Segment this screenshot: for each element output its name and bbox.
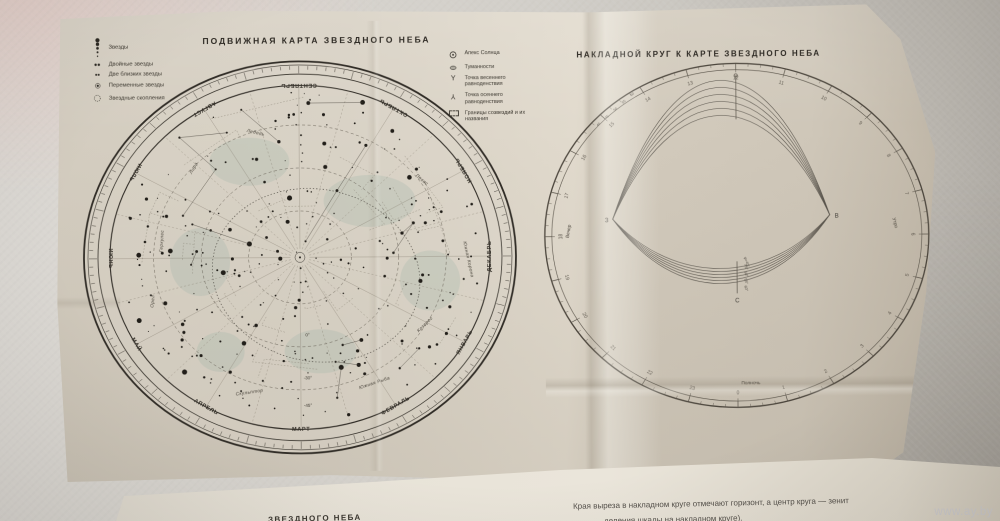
svg-text:20: 20	[581, 312, 589, 320]
svg-text:14: 14	[644, 96, 652, 104]
svg-text:-30°: -30°	[304, 375, 313, 380]
svg-text:13: 13	[687, 80, 694, 87]
svg-text:Утро: Утро	[890, 217, 899, 229]
legend-label: Звезды	[108, 45, 128, 51]
svg-text:22: 22	[646, 369, 654, 377]
svg-text:16: 16	[580, 154, 588, 162]
svg-text:7: 7	[903, 191, 910, 195]
cardinal-marks: СЗВ	[604, 73, 839, 305]
svg-text:6: 6	[909, 233, 915, 236]
svg-text:8: 8	[885, 153, 892, 159]
svg-text:55°: 55°	[743, 278, 749, 285]
caption-line-2: деления шкалы на накладном круге).	[604, 514, 743, 521]
svg-text:21: 21	[609, 344, 617, 352]
svg-text:15: 15	[608, 121, 616, 129]
svg-text:17: 17	[563, 192, 570, 199]
svg-text:10: 10	[820, 95, 828, 103]
svg-text:60: 60	[629, 91, 635, 97]
latitude-labels: φ=40°45°50°55°60°4045505560	[595, 91, 750, 294]
watermark: www.ay.by	[934, 506, 993, 518]
time-labels: ВечерУтроПолночь	[565, 217, 901, 387]
svg-text:18: 18	[558, 234, 564, 240]
svg-text:3: 3	[859, 343, 865, 349]
svg-text:5: 5	[904, 273, 911, 277]
partial-bottom-title: ЗВЕЗДНОГО НЕБА	[268, 513, 362, 521]
left-chart-title: ПОДВИЖНАЯ КАРТА ЗВЕЗДНОГО НЕБА	[156, 34, 476, 46]
photo-scene: { "photo": { "watermark": "www.ay.by" },…	[0, 0, 1000, 521]
paper-sheet: ПОДВИЖНАЯ КАРТА ЗВЕЗДНОГО НЕБА НАКЛАДНОЙ…	[0, 0, 1000, 521]
svg-text:40: 40	[596, 122, 602, 128]
svg-text:С: С	[735, 298, 740, 304]
svg-text:Вечер: Вечер	[565, 224, 573, 239]
svg-text:Полночь: Полночь	[741, 380, 761, 386]
caption-line-1: Края выреза в накладном круге отмечают г…	[573, 496, 849, 511]
svg-text:55: 55	[621, 99, 627, 105]
svg-text:0: 0	[737, 390, 740, 396]
svg-text:0°: 0°	[305, 332, 310, 337]
svg-text:-45°: -45°	[304, 403, 313, 408]
svg-text:9: 9	[857, 120, 863, 126]
horizon-ovals	[612, 80, 830, 285]
svg-text:4: 4	[887, 310, 894, 316]
svg-text:45°: 45°	[743, 264, 749, 271]
svg-text:2: 2	[823, 368, 829, 375]
star-chart: СЕНТЯБРЬОКТЯБРЬНОЯБРЬДЕКАБРЬЯНВАРЬФЕВРАЛ…	[69, 50, 537, 468]
hour-ring	[544, 62, 930, 409]
hour-numbers: 01234567891011121314151617181920212223	[557, 74, 916, 398]
svg-text:19: 19	[563, 274, 570, 281]
overlay-circle-chart: 01234567891011121314151617181920212223СЗ…	[539, 55, 942, 418]
svg-text:1: 1	[781, 384, 785, 391]
svg-text:23: 23	[689, 385, 696, 392]
svg-text:11: 11	[778, 80, 785, 87]
svg-text:В: В	[835, 214, 839, 220]
svg-text:З: З	[605, 218, 609, 224]
svg-text:45: 45	[604, 114, 610, 120]
svg-text:60°: 60°	[743, 285, 749, 292]
svg-text:50: 50	[613, 107, 619, 113]
